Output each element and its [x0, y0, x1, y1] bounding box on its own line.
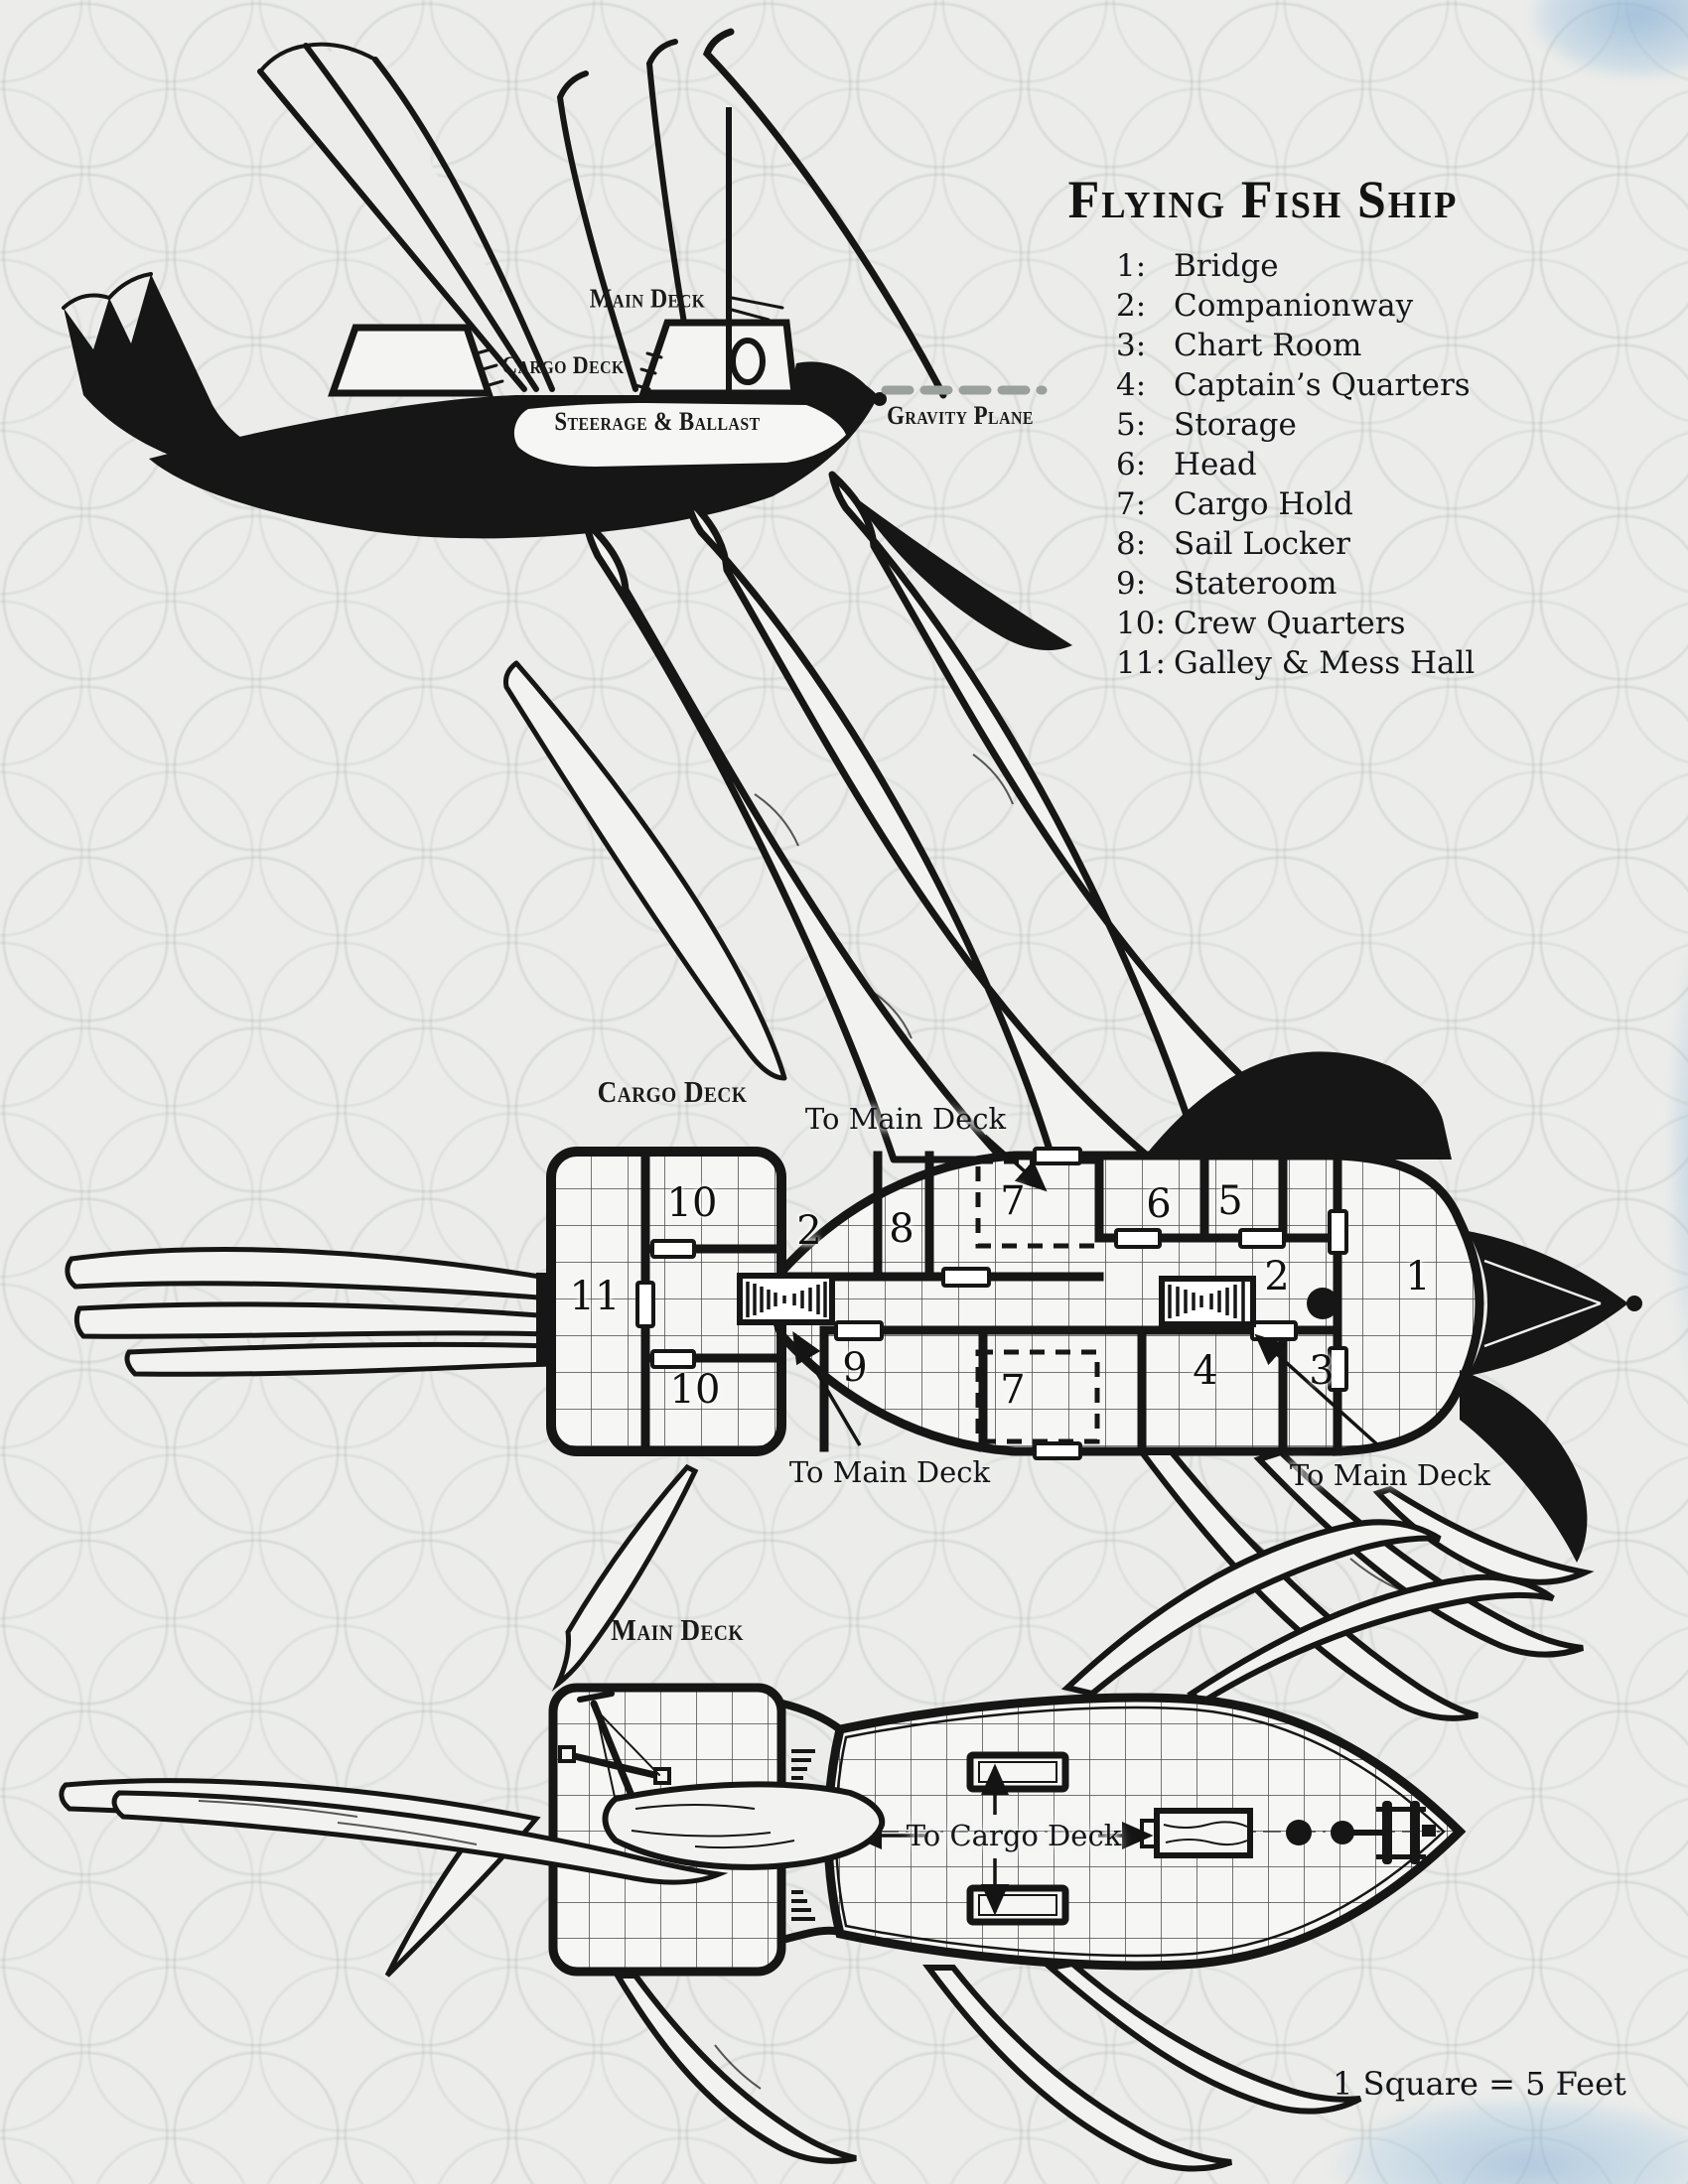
bow-ornament — [1468, 1231, 1628, 1376]
side-steerage-label: Steerage & Ballast — [554, 407, 760, 437]
to-main-deck-top-label: To Main Deck — [805, 1102, 1006, 1136]
fin — [1051, 1964, 1360, 2112]
bow-tip-ball — [1626, 1296, 1642, 1311]
legend-item: 1:Bridge — [1116, 246, 1475, 286]
side-main-deck-label: Main Deck — [590, 284, 705, 315]
legend-label: Cargo Hold — [1174, 486, 1353, 522]
legend-label: Chart Room — [1174, 328, 1361, 363]
mast — [726, 107, 732, 395]
wooden-fin — [606, 1784, 883, 1866]
legend-label: Head — [1174, 447, 1257, 482]
room-number-chart-room: 3 — [1309, 1348, 1334, 1394]
room-number-cargo-hold: 7 — [1000, 1178, 1025, 1224]
side-deckhouse-fore — [643, 323, 794, 393]
legend-number: 2: — [1116, 286, 1174, 326]
legend-item: 4:Captain’s Quarters — [1116, 365, 1475, 405]
to-main-deck-left-label: To Main Deck — [789, 1455, 990, 1489]
room-number-galley: 11 — [570, 1274, 621, 1319]
scale-note: 1 Square = 5 Feet — [1333, 2065, 1626, 2103]
legend-number: 11: — [1116, 643, 1174, 683]
room-number-companionway: 2 — [796, 1208, 821, 1254]
legend-item: 11:Galley & Mess Hall — [1116, 643, 1475, 683]
to-cargo-deck-label: To Cargo Deck — [907, 1819, 1122, 1852]
side-view-art — [64, 32, 1072, 650]
legend-label: Crew Quarters — [1174, 606, 1405, 641]
legend-item: 9:Stateroom — [1116, 564, 1475, 604]
legend-item: 6:Head — [1116, 445, 1475, 484]
legend-label: Companionway — [1174, 288, 1413, 324]
mast-dot — [1286, 1820, 1312, 1845]
room-number-crew-quarters: 10 — [670, 1367, 721, 1413]
legend-number: 9: — [1116, 564, 1174, 604]
crate — [1142, 1811, 1250, 1855]
legend-number: 10: — [1116, 604, 1174, 643]
stairs-icon — [740, 1276, 832, 1322]
page-title: Flying Fish Ship — [1068, 169, 1459, 230]
legend-item: 2:Companionway — [1116, 286, 1475, 326]
cargo-deck-plan-art — [68, 1132, 1642, 1469]
legend-number: 5: — [1116, 405, 1174, 445]
ship-map-page: Flying Fish Ship 1:Bridge 2:Companionway… — [0, 0, 1688, 2184]
legend-item: 8:Sail Locker — [1116, 524, 1475, 564]
mast-rigging — [732, 298, 782, 320]
room-number-storage: 5 — [1217, 1178, 1242, 1224]
mast-dot — [1331, 1821, 1354, 1844]
room-number-sail-locker: 8 — [889, 1206, 914, 1252]
room-number-cargo-hold: 7 — [1000, 1367, 1025, 1413]
legend-number: 3: — [1116, 326, 1174, 365]
room-number-stateroom: 9 — [842, 1345, 867, 1391]
legend-number: 6: — [1116, 445, 1174, 484]
stairs-icon — [1162, 1279, 1253, 1324]
room-number-captains-quarters: 4 — [1193, 1348, 1217, 1394]
legend-item: 3:Chart Room — [1116, 326, 1475, 365]
mast-dot — [1307, 1288, 1338, 1319]
cargo-deck-heading: Cargo Deck — [598, 1074, 748, 1110]
cargo-tail-fin — [68, 1250, 552, 1375]
side-deckhouse-aft — [333, 328, 489, 393]
main-deck-fins-bottom — [618, 1964, 1360, 2169]
legend-item: 10:Crew Quarters — [1116, 604, 1475, 643]
room-number-head: 6 — [1146, 1181, 1171, 1227]
side-cargo-deck-label: Cargo Deck — [501, 352, 625, 380]
legend-label: Sail Locker — [1174, 526, 1350, 562]
legend-number: 4: — [1116, 365, 1174, 405]
to-main-deck-right-label: To Main Deck — [1290, 1458, 1490, 1492]
legend-number: 1: — [1116, 246, 1174, 286]
legend-item: 7:Cargo Hold — [1116, 484, 1475, 524]
gravity-plane-label: Gravity Plane — [887, 401, 1034, 431]
legend-label: Storage — [1174, 407, 1297, 443]
side-fin-ray — [560, 73, 635, 389]
legend-label: Stateroom — [1174, 566, 1337, 602]
porthole — [733, 341, 763, 382]
legend-label: Bridge — [1174, 248, 1279, 284]
fin — [558, 1467, 695, 1684]
whisker-fin — [505, 663, 784, 1078]
legend-number: 7: — [1116, 484, 1174, 524]
legend-number: 8: — [1116, 524, 1174, 564]
legend-item: 5:Storage — [1116, 405, 1475, 445]
room-number-bridge: 1 — [1405, 1254, 1430, 1299]
main-deck-heading: Main Deck — [611, 1612, 744, 1648]
room-legend: 1:Bridge 2:Companionway 3:Chart Room 4:C… — [1116, 246, 1475, 683]
legend-label: Galley & Mess Hall — [1174, 645, 1475, 681]
room-number-crew-quarters: 10 — [667, 1180, 718, 1226]
legend-label: Captain’s Quarters — [1174, 367, 1471, 403]
room-number-companionway: 2 — [1264, 1254, 1289, 1299]
